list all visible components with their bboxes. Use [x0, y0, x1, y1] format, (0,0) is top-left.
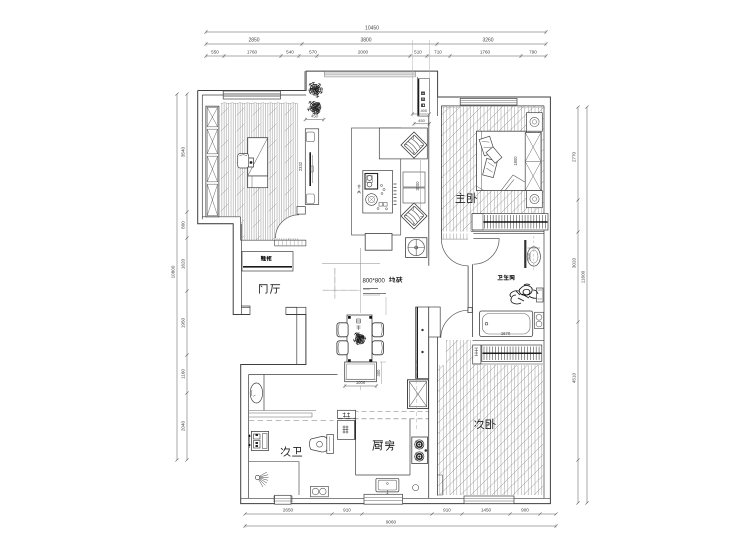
- svg-text:1760: 1760: [480, 50, 491, 55]
- svg-text:1950: 1950: [181, 317, 186, 328]
- svg-text:3800: 3800: [360, 38, 371, 44]
- svg-text:450: 450: [311, 114, 319, 119]
- svg-text:10800: 10800: [171, 265, 176, 278]
- svg-text:910: 910: [343, 508, 351, 513]
- svg-text:790: 790: [529, 50, 537, 55]
- svg-text:1800: 1800: [513, 156, 518, 166]
- svg-text:1000: 1000: [356, 380, 366, 385]
- svg-text:570: 570: [309, 50, 317, 55]
- svg-text:9060: 9060: [386, 520, 397, 525]
- svg-text:510: 510: [414, 50, 422, 55]
- svg-text:450: 450: [418, 118, 425, 123]
- svg-text:800: 800: [181, 221, 186, 229]
- svg-text:2770: 2770: [572, 151, 577, 162]
- svg-text:910: 910: [443, 508, 451, 513]
- svg-text:3540: 3540: [181, 146, 186, 157]
- svg-text:1620: 1620: [181, 258, 186, 269]
- svg-text:1760: 1760: [247, 50, 258, 55]
- svg-text:1450: 1450: [481, 508, 492, 513]
- svg-text:710: 710: [434, 50, 442, 55]
- svg-text:1620: 1620: [528, 253, 532, 261]
- svg-text:4510: 4510: [572, 372, 577, 383]
- svg-text:900: 900: [521, 508, 529, 513]
- svg-text:400: 400: [420, 108, 427, 113]
- svg-text:2650: 2650: [283, 508, 294, 513]
- svg-text:400: 400: [376, 369, 381, 377]
- svg-text:550: 550: [211, 50, 219, 55]
- svg-text:1160: 1160: [181, 369, 186, 379]
- svg-text:11600: 11600: [581, 270, 586, 283]
- svg-text:2850: 2850: [248, 38, 259, 44]
- svg-text:800*800: 800*800: [363, 279, 386, 285]
- svg-text:3200: 3200: [415, 181, 420, 191]
- svg-text:3020: 3020: [572, 257, 577, 268]
- svg-text:540: 540: [286, 50, 294, 55]
- svg-text:2332: 2332: [298, 161, 303, 171]
- svg-text:2040: 2040: [181, 420, 186, 431]
- svg-text:10450: 10450: [365, 26, 379, 32]
- svg-text:3260: 3260: [482, 38, 493, 44]
- svg-text:1670: 1670: [501, 331, 511, 336]
- svg-text:2000: 2000: [358, 50, 369, 55]
